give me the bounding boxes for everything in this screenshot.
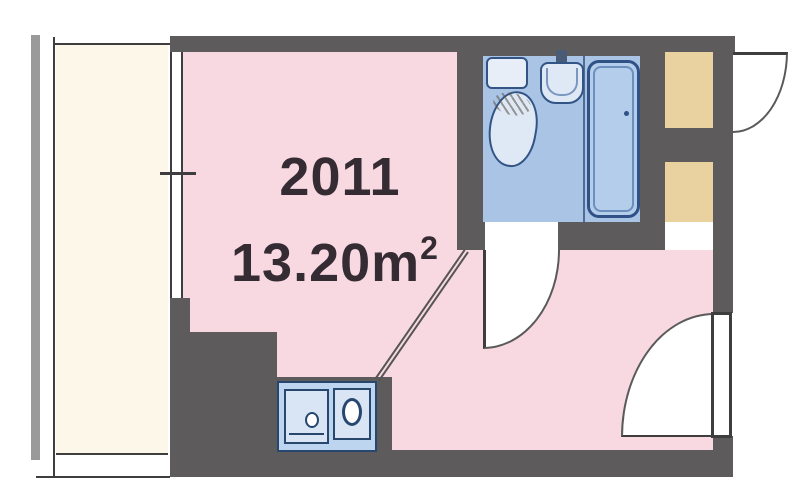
exterior-door-swing-arc [733,52,788,133]
floor-plan: 2011 13.20m2 [0,0,800,504]
window-center-tick [160,172,196,175]
balcony-floor [56,45,168,455]
stove-icon [333,388,371,440]
kitchen-sink-drain [305,412,319,428]
wall-top [170,36,735,52]
closet-upper [665,52,713,128]
sink-icon [540,50,585,106]
bathtub-icon [587,60,640,218]
bathtub-inner-line [593,66,634,212]
stove-burner-icon [342,398,362,426]
kitchen-sink-front-line [289,433,324,435]
sink-inner-line [546,68,578,96]
closet-lower-gap [665,222,713,250]
bathtub-drain [624,111,629,116]
wall-right-upper-segment [713,250,733,313]
wall-left-lower [170,298,190,450]
unit-number: 2011 [200,150,480,204]
toilet-icon [484,55,540,170]
balcony-bottom-line [36,476,170,478]
kitchen-unit [277,381,377,452]
wall-bottom [170,450,733,477]
balcony-outer-rail [31,35,40,460]
toilet-tank [486,57,528,89]
wall-right-lower-segment [713,436,733,452]
closet-lower [665,162,713,222]
balcony-left-line [53,37,55,478]
unit-area-exponent: 2 [420,230,439,266]
unit-area: 13.20m2 [175,232,495,290]
unit-number-text: 2011 [279,147,400,207]
entrance-door-leaf [711,312,732,438]
bathroom-doorway-gap [485,222,558,250]
kitchen-sink-icon [284,389,329,444]
unit-area-value: 13.20m [231,233,420,293]
